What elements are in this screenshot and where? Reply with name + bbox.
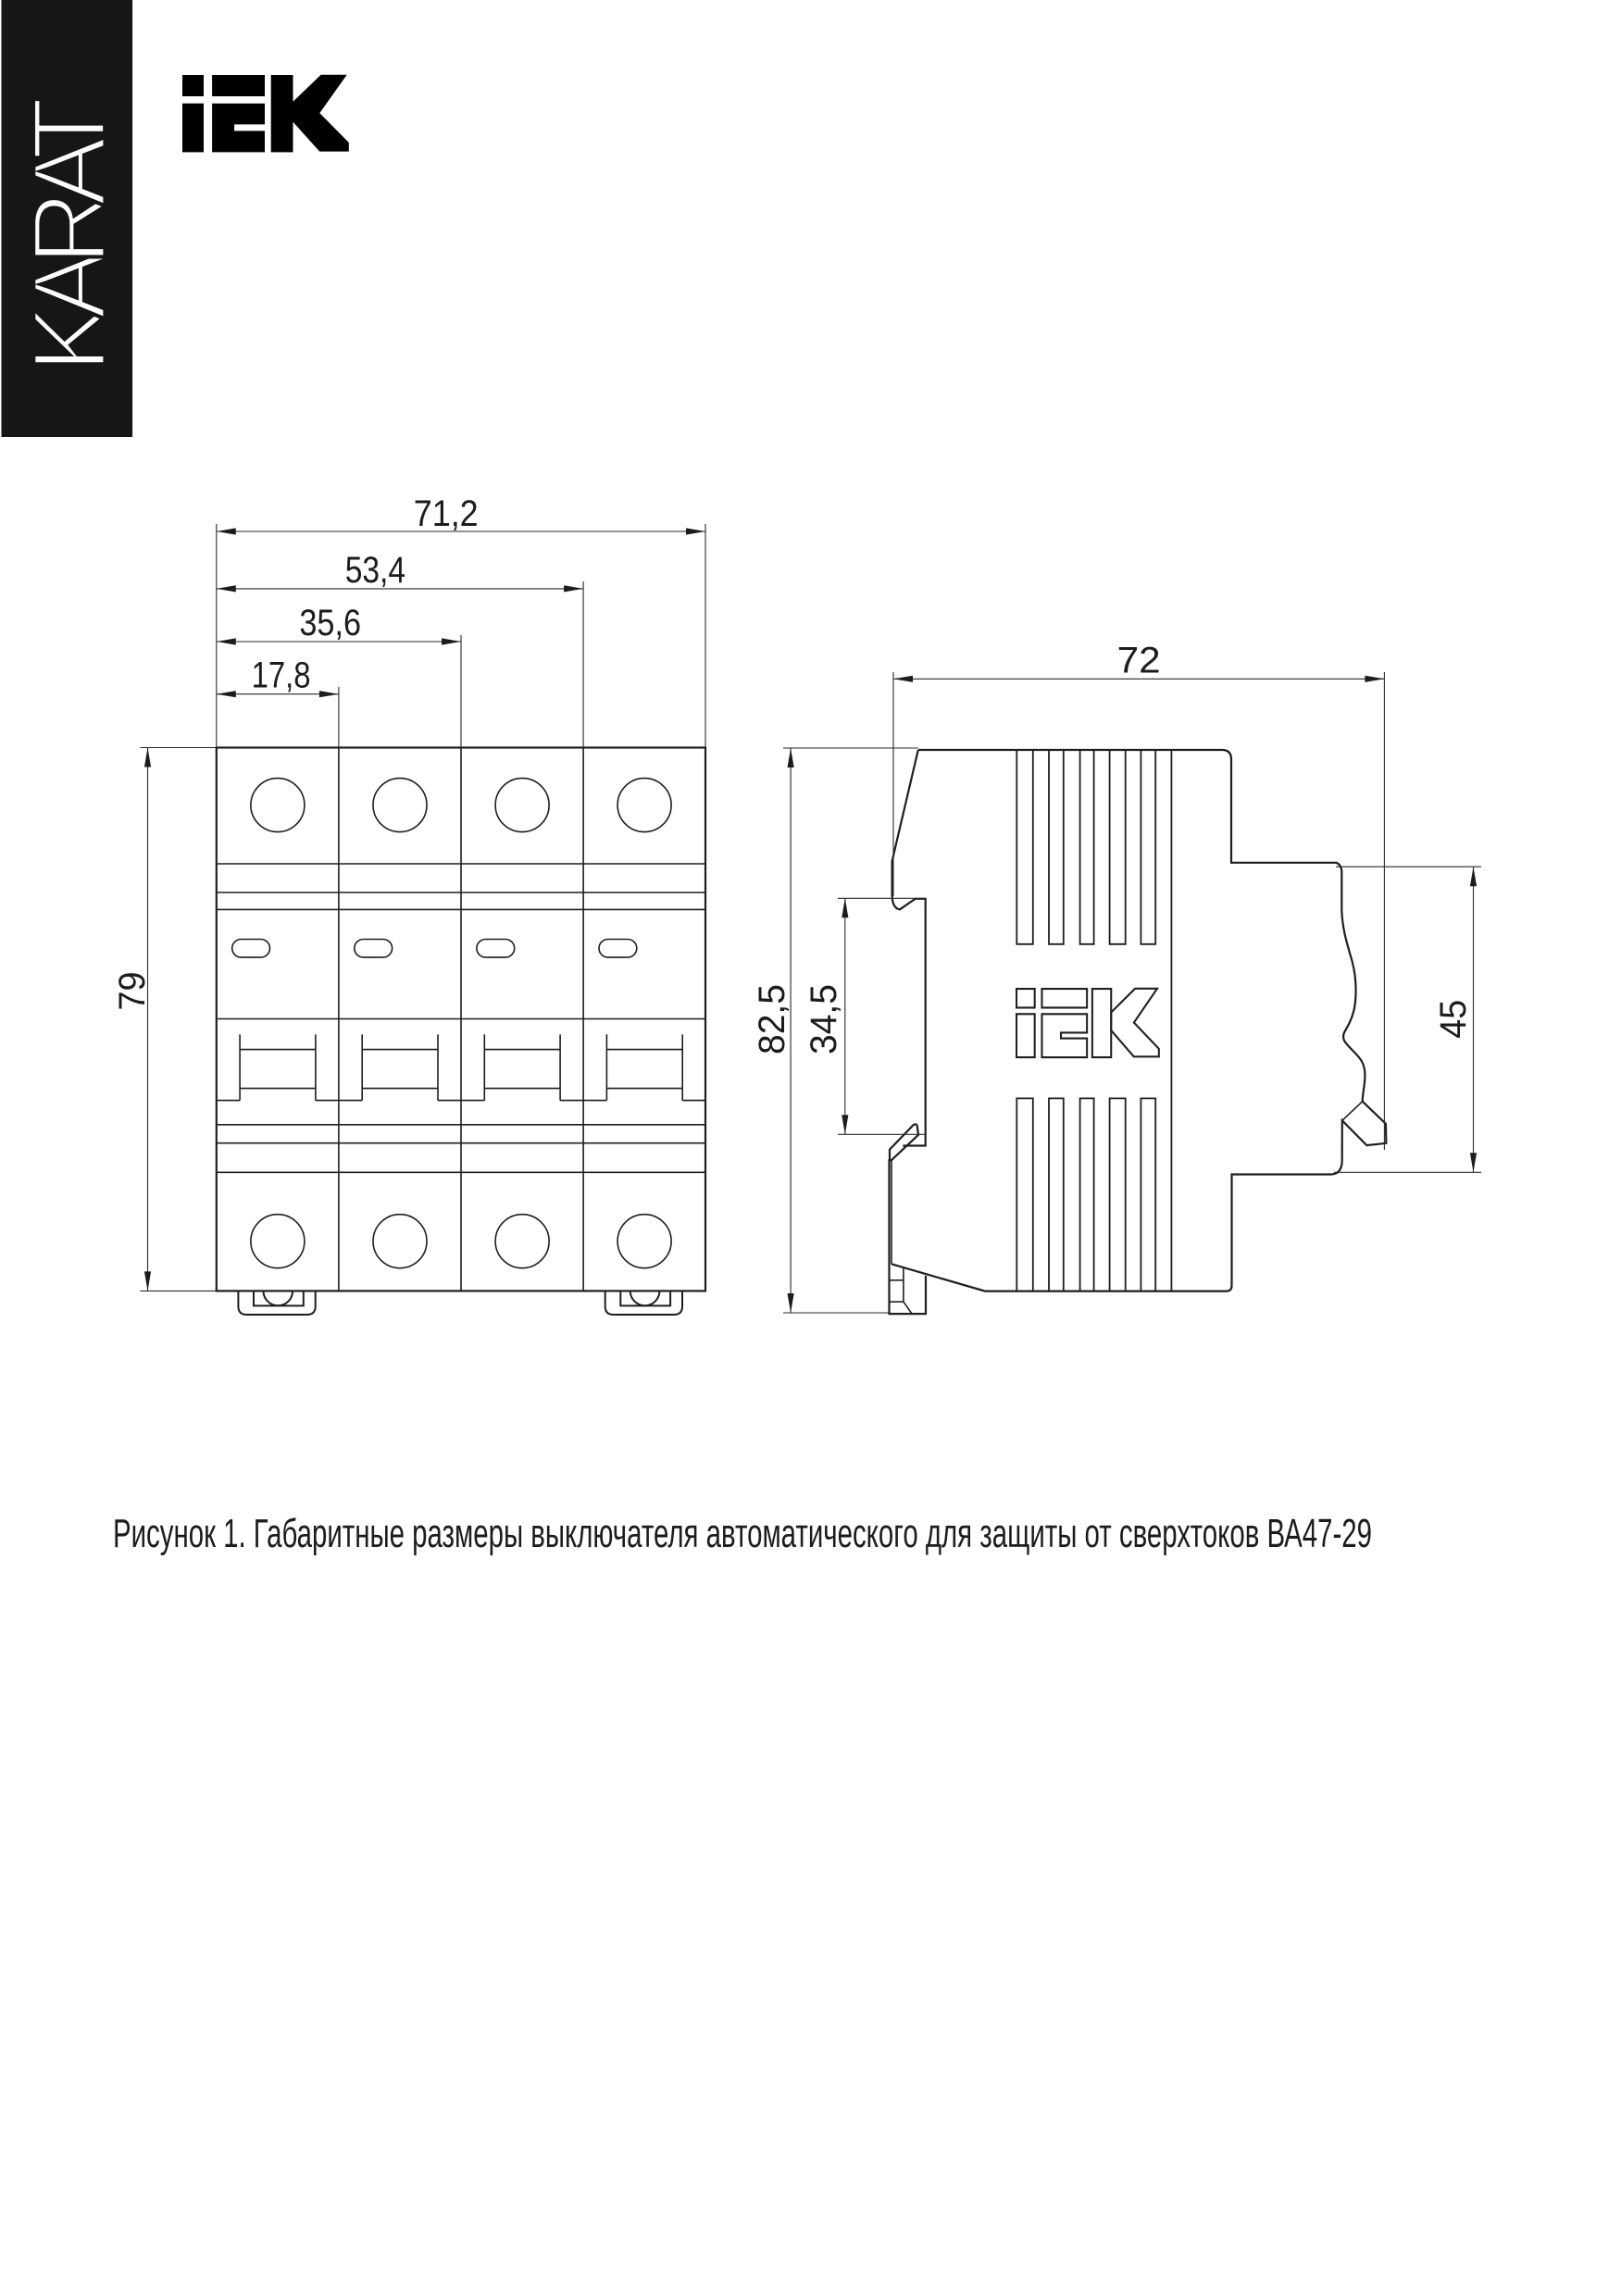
svg-text:KARAT: KARAT [12,97,128,373]
svg-text:71,2: 71,2 [414,493,479,534]
svg-text:72: 72 [1117,640,1161,680]
svg-text:Рисунок 1. Габаритные размеры: Рисунок 1. Габаритные размеры выключател… [113,1511,1372,1556]
svg-text:45: 45 [1433,1000,1474,1039]
svg-text:82,5: 82,5 [752,984,792,1054]
svg-text:17,8: 17,8 [252,655,311,696]
svg-text:79: 79 [112,972,153,1011]
svg-text:53,4: 53,4 [345,550,405,591]
svg-text:35,6: 35,6 [299,603,361,643]
svg-text:34,5: 34,5 [804,984,844,1054]
